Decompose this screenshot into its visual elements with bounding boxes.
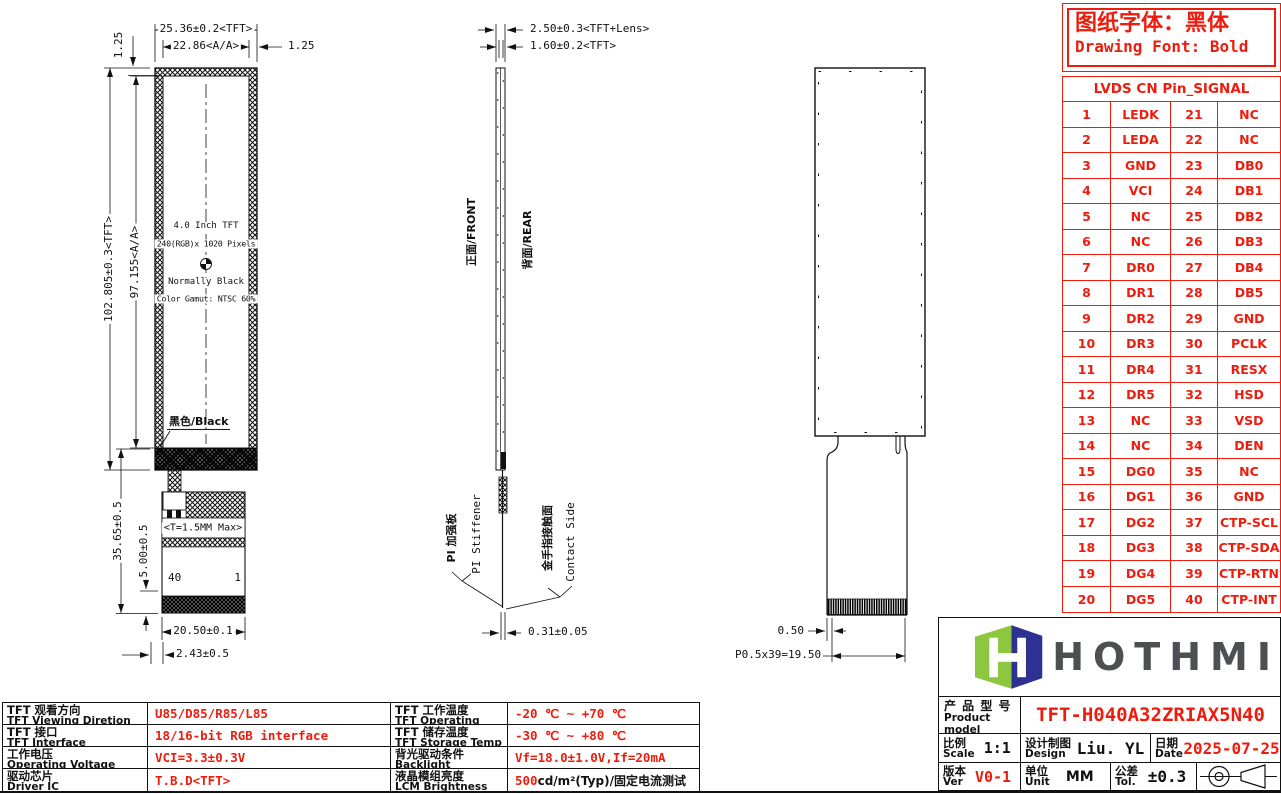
- datasheet-page: 25.36±0.2<TFT> 22.86<A/A> 1.25 1.25 102.…: [0, 0, 1281, 794]
- pin-number: 33: [1171, 408, 1218, 434]
- version-cell: 版本Ver V0-1: [939, 763, 1021, 790]
- pin-signal: CTP-SDA: [1218, 536, 1280, 562]
- font-note-en: Drawing Font: Bold: [1075, 37, 1268, 57]
- pin-signal: NC: [1111, 434, 1171, 460]
- pin-number: 25: [1171, 204, 1218, 230]
- pin-signal: DR0: [1111, 255, 1171, 281]
- pin-number: 3: [1063, 153, 1111, 179]
- pin-number: 36: [1171, 485, 1218, 511]
- thickness-label: <T=1.5MM Max>: [162, 523, 244, 534]
- pin-1-label: 1: [232, 572, 243, 584]
- pin-signal: GND: [1218, 306, 1280, 332]
- pin-signal: CTP-INT: [1218, 587, 1280, 613]
- pin-signal: DB2: [1218, 204, 1280, 230]
- pin-signal: VSD: [1218, 408, 1280, 434]
- dim-finger-pitch: P0.5x39=19.50: [733, 649, 823, 661]
- pin-signal: NC: [1218, 102, 1280, 128]
- pin-signal: HSD: [1218, 383, 1280, 409]
- pin-number: 34: [1171, 434, 1218, 460]
- contact-side-label-en: Contact Side: [565, 500, 577, 583]
- dim-front-margin-top: 1.25: [113, 30, 125, 61]
- pin-number: 28: [1171, 281, 1218, 307]
- spec-value: 18/16-bit RGB interface: [148, 725, 391, 747]
- product-model-value: TFT-H040A32ZRIAX5N40: [1021, 697, 1280, 733]
- pin-signal: DB0: [1218, 153, 1280, 179]
- spec-label: 驱动芯片 Driver IC: [3, 769, 148, 791]
- pin-number: 17: [1063, 510, 1111, 536]
- pin-number: 31: [1171, 357, 1218, 383]
- pin-signal: PCLK: [1218, 332, 1280, 358]
- pin-number: 14: [1063, 434, 1111, 460]
- pin-number: 13: [1063, 408, 1111, 434]
- pin-signal: GND: [1218, 485, 1280, 511]
- design-value: Liu. YL: [1071, 739, 1150, 758]
- black-color-label: 黑色/Black: [167, 416, 230, 430]
- pin-number: 19: [1063, 561, 1111, 587]
- scale-value: 1:1: [975, 739, 1020, 757]
- tolerance-cell: 公差Tol. ±0.3: [1111, 763, 1197, 790]
- font-note-cn: 图纸字体：黑体: [1075, 11, 1268, 37]
- pin-number: 39: [1171, 561, 1218, 587]
- pin-signal: DR4: [1111, 357, 1171, 383]
- spec-label: 工作电压 Operating Voltage: [3, 747, 148, 769]
- pin-signal: CTP-RTN: [1218, 561, 1280, 587]
- dim-side-thickness-lens: 2.50±0.3<TFT+Lens>: [528, 23, 651, 35]
- design-cell: 设计制图Design Liu. YL: [1021, 734, 1151, 762]
- panel-resolution-label: 240(RGB)x 1020 Pixels: [155, 239, 258, 248]
- product-model-label: 产 品 型 号 Product model: [939, 697, 1021, 733]
- pin-signal: DG5: [1111, 587, 1171, 613]
- pin-number: 24: [1171, 179, 1218, 205]
- pin-number: 4: [1063, 179, 1111, 205]
- pin-signal: NC: [1218, 459, 1280, 485]
- pin-signal: DG2: [1111, 510, 1171, 536]
- panel-size-label: 4.0 Inch TFT: [171, 222, 240, 232]
- pin-number: 2: [1063, 128, 1111, 154]
- spec-label: TFT 工作温度 TFT Operating Temp: [391, 703, 508, 725]
- hothmi-logo-icon: [973, 622, 1044, 692]
- front-face-label: 正面/FRONT: [466, 196, 478, 268]
- pin-signal: DG0: [1111, 459, 1171, 485]
- brand-name: HOTHMI: [1052, 635, 1280, 679]
- pin-signal: DG3: [1111, 536, 1171, 562]
- logo-row: HOTHMI: [939, 618, 1280, 697]
- pin-number: 6: [1063, 230, 1111, 256]
- stiffener-label-en: PI Stiffener: [471, 492, 483, 575]
- pin-number: 35: [1171, 459, 1218, 485]
- pin-number: 7: [1063, 255, 1111, 281]
- pin-table-title: LVDS CN Pin_SIGNAL: [1063, 77, 1280, 102]
- pin-number: 9: [1063, 306, 1111, 332]
- pin-number: 26: [1171, 230, 1218, 256]
- dim-tail-offset: 2.43±0.5: [174, 648, 231, 660]
- dim-front-margin-right: 1.25: [286, 40, 317, 52]
- pin-number: 27: [1171, 255, 1218, 281]
- pin-signal: DG1: [1111, 485, 1171, 511]
- pin-number: 12: [1063, 383, 1111, 409]
- pin-40-label: 40: [166, 572, 183, 584]
- pin-number: 32: [1171, 383, 1218, 409]
- stiffener-label-cn: PI 加强板: [446, 512, 458, 565]
- pin-signal: RESX: [1218, 357, 1280, 383]
- version-value: V0-1: [966, 768, 1020, 786]
- page-border-bottom: [0, 791, 1281, 793]
- rear-face-label: 背面/REAR: [522, 209, 534, 272]
- spec-label: TFT 储存温度 TFT Storage Temp: [391, 725, 508, 747]
- pin-signal: NC: [1111, 230, 1171, 256]
- pin-signal: DR3: [1111, 332, 1171, 358]
- dim-tail-width: 20.50±0.1: [171, 625, 235, 637]
- pin-table: LVDS CN Pin_SIGNAL 1 LEDK 21 NC 2 LEDA 2…: [1062, 76, 1281, 613]
- spec-value: 500 cd/m²(Typ)/固定电流测试: [508, 769, 699, 791]
- pin-number: 18: [1063, 536, 1111, 562]
- dim-front-width-tft: 25.36±0.2<TFT>: [158, 23, 255, 35]
- scale-cell: 比例Scale 1:1: [939, 734, 1021, 762]
- spec-label: 液晶模组亮度 LCM Brightness: [391, 769, 508, 791]
- pin-number: 23: [1171, 153, 1218, 179]
- dim-front-width-aa: 22.86<A/A>: [171, 40, 241, 52]
- spec-value: -30 ℃ ~ +80 ℃: [508, 725, 699, 747]
- projection-cell: [1197, 763, 1280, 790]
- scale-design-date-row: 比例Scale 1:1 设计制图Design Liu. YL 日期Date 20…: [939, 734, 1280, 763]
- pin-number: 29: [1171, 306, 1218, 332]
- pin-signal: DEN: [1218, 434, 1280, 460]
- spec-value: -20 ℃ ~ +70 ℃: [508, 703, 699, 725]
- spec-label: TFT 接口 TFT Interface: [3, 725, 148, 747]
- pin-number: 40: [1171, 587, 1218, 613]
- pin-signal: CTP-SCL: [1218, 510, 1280, 536]
- pin-number: 5: [1063, 204, 1111, 230]
- pin-signal: DR2: [1111, 306, 1171, 332]
- pin-number: 38: [1171, 536, 1218, 562]
- font-note-box: 图纸字体：黑体 Drawing Font: Bold: [1062, 3, 1281, 72]
- unit-cell: 单位Unit MM: [1021, 763, 1111, 790]
- version-unit-tol-row: 版本Ver V0-1 单位Unit MM 公差Tol. ±0.3: [939, 763, 1280, 790]
- pin-signal: NC: [1111, 408, 1171, 434]
- pin-number: 10: [1063, 332, 1111, 358]
- pin-number: 16: [1063, 485, 1111, 511]
- spec-table: TFT 观看方向 TFT Viewing Diretion U85/D85/R8…: [2, 702, 700, 792]
- pin-number: 30: [1171, 332, 1218, 358]
- contact-side-label-cn: 金手指接触面: [542, 503, 554, 573]
- pin-signal: DB3: [1218, 230, 1280, 256]
- unit-value: MM: [1050, 769, 1110, 785]
- pin-signal: LEDA: [1111, 128, 1171, 154]
- date-cell: 日期Date 2025-07-25: [1151, 734, 1280, 762]
- front-view-drawing: [104, 24, 282, 664]
- title-block: HOTHMI 产 品 型 号 Product model TFT-H040A32…: [938, 617, 1281, 791]
- pin-signal: DB1: [1218, 179, 1280, 205]
- pin-signal: DG4: [1111, 561, 1171, 587]
- spec-label: TFT 观看方向 TFT Viewing Diretion: [3, 703, 148, 725]
- dim-side-thickness-tft: 1.60±0.2<TFT>: [528, 40, 618, 52]
- spec-value: T.B.D<TFT>: [148, 769, 391, 791]
- pin-signal: DR5: [1111, 383, 1171, 409]
- panel-gamut-label: Color Gamut: NTSC 60%: [155, 294, 258, 303]
- third-angle-projection-icon: [1199, 763, 1279, 790]
- dim-fpc-thickness: 0.31±0.05: [526, 626, 590, 638]
- dim-front-height-aa: 97.155<A/A>: [129, 224, 141, 301]
- pin-signal: GND: [1111, 153, 1171, 179]
- pin-number: 22: [1171, 128, 1218, 154]
- pin-number: 37: [1171, 510, 1218, 536]
- tolerance-value: ±0.3: [1138, 767, 1196, 786]
- spec-label: 背光驱动条件 Backlight conditions: [391, 747, 508, 769]
- spec-value: Vf=18.0±1.0V,If=20mA: [508, 747, 699, 769]
- spec-value: U85/D85/R85/L85: [148, 703, 391, 725]
- pin-signal: DR1: [1111, 281, 1171, 307]
- panel-mode-label: Normally Black: [166, 278, 246, 288]
- pin-signal: NC: [1218, 128, 1280, 154]
- pin-signal: LEDK: [1111, 102, 1171, 128]
- rear-view-drawing: [800, 68, 925, 662]
- pin-number: 8: [1063, 281, 1111, 307]
- dim-front-height-tft: 102.805±0.3<TFT>: [103, 214, 115, 324]
- date-value: 2025-07-25: [1183, 739, 1280, 758]
- pin-signal: NC: [1111, 204, 1171, 230]
- pin-number: 15: [1063, 459, 1111, 485]
- pin-table-grid: 1 LEDK 21 NC 2 LEDA 22 NC 3 GND 23 DB0 4…: [1063, 102, 1280, 612]
- dim-finger-offset: 0.50: [776, 625, 807, 637]
- pin-number: 1: [1063, 102, 1111, 128]
- product-model-row: 产 品 型 号 Product model TFT-H040A32ZRIAX5N…: [939, 697, 1280, 734]
- dim-tail-length: 35.65±0.5: [112, 499, 124, 563]
- pin-number: 21: [1171, 102, 1218, 128]
- dim-contact-height: 5.00±0.5: [138, 523, 150, 580]
- spec-value: VCI=3.3±0.3V: [148, 747, 391, 769]
- pin-number: 11: [1063, 357, 1111, 383]
- pin-signal: DB4: [1218, 255, 1280, 281]
- pin-number: 20: [1063, 587, 1111, 613]
- pin-signal: VCI: [1111, 179, 1171, 205]
- pin-signal: DB5: [1218, 281, 1280, 307]
